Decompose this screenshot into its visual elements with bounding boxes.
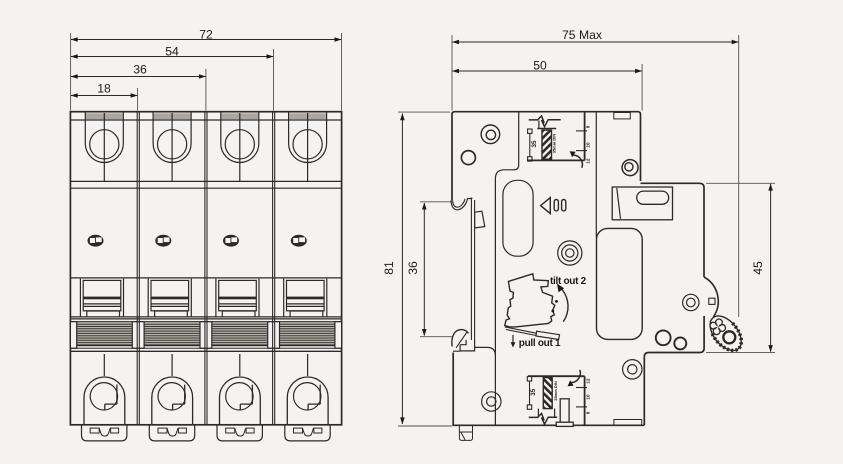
svg-text:35mm DIN: 35mm DIN	[553, 381, 558, 401]
svg-text:tilt out 2: tilt out 2	[550, 276, 587, 287]
svg-text:8: 8	[585, 411, 590, 414]
svg-text:54: 54	[165, 44, 179, 58]
svg-text:10: 10	[585, 394, 590, 400]
svg-text:35: 35	[530, 388, 537, 395]
svg-text:36: 36	[133, 62, 147, 76]
svg-text:50: 50	[533, 58, 547, 72]
svg-text:81: 81	[382, 261, 396, 275]
svg-text:8: 8	[585, 125, 590, 128]
svg-text:12: 12	[585, 378, 590, 384]
svg-text:75 Max: 75 Max	[562, 28, 602, 42]
svg-text:35mm DIN: 35mm DIN	[552, 134, 557, 154]
svg-text:36: 36	[406, 261, 420, 275]
svg-text:12: 12	[585, 158, 590, 164]
svg-text:72: 72	[199, 27, 213, 41]
svg-text:pull out 1: pull out 1	[519, 338, 561, 349]
svg-text:45: 45	[751, 261, 765, 275]
svg-text:18: 18	[97, 81, 111, 95]
svg-text:10: 10	[585, 142, 590, 148]
svg-text:35: 35	[531, 140, 538, 147]
